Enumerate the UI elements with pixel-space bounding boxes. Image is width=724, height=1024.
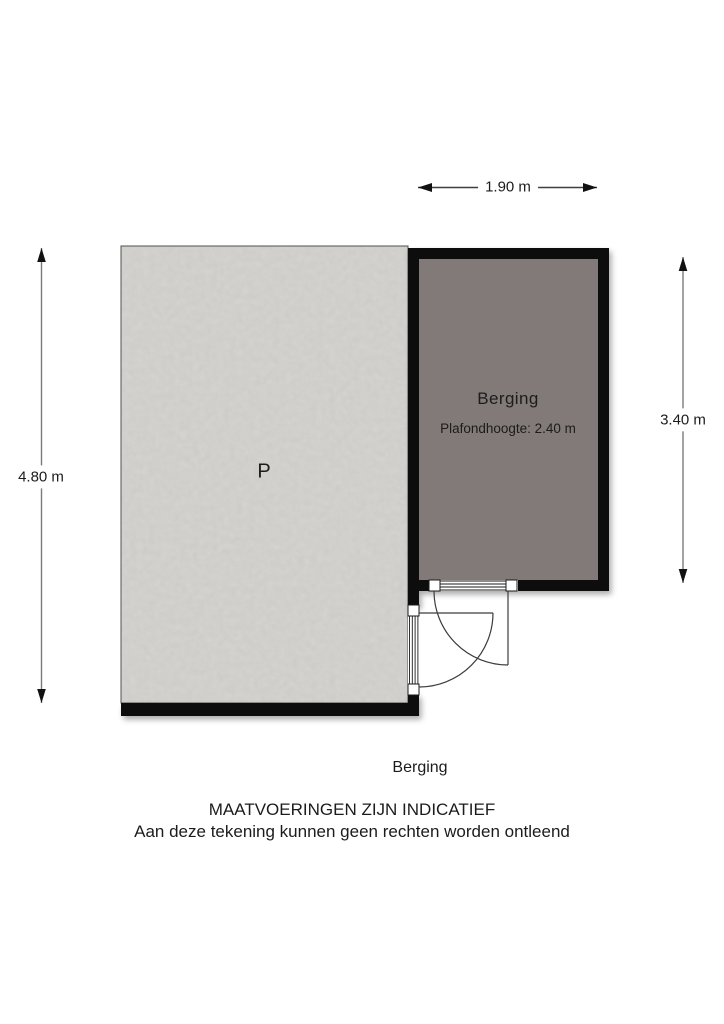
dimension-width-label: 1.90 m: [478, 177, 538, 196]
dimension-height-right-label: 3.40 m: [655, 408, 711, 431]
berging-floor: [419, 259, 598, 580]
disclaimer-line1: MAATVOERINGEN ZIJN INDICATIEF: [209, 800, 496, 820]
door-swing-arc: [434, 591, 508, 665]
berging-door-symbol: [429, 580, 518, 665]
door-swing-arc: [419, 613, 493, 687]
room-name-label: Berging: [477, 389, 538, 409]
corridor-door-symbol: [408, 605, 493, 695]
plan-title: Berging: [392, 759, 447, 777]
parking-label: P: [257, 461, 270, 484]
disclaimer-line2: Aan deze tekening kunnen geen rechten wo…: [134, 822, 570, 842]
ceiling-height-label: Plafondhoogte: 2.40 m: [440, 421, 576, 437]
dimension-height-left-label: 4.80 m: [13, 465, 69, 488]
floorplan-page: P Berging Plafondhoogte: 2.40 m 1.90 m 4…: [0, 0, 724, 1024]
floorplan-drawing: [0, 0, 724, 1024]
